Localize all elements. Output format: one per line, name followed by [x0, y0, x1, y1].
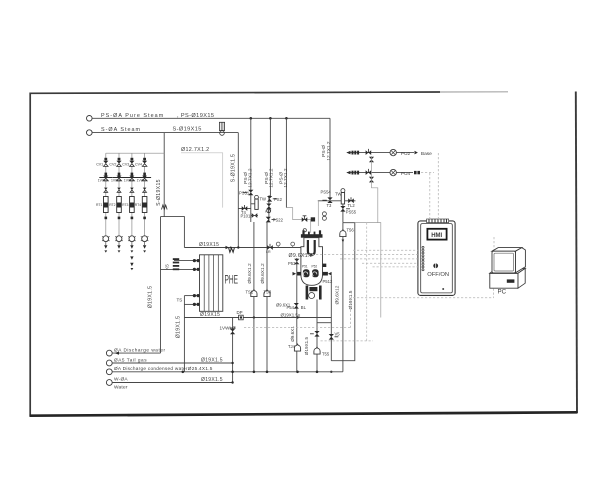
svg-text:S-Ø19X15: S-Ø19X15	[156, 179, 162, 206]
svg-text:TS: TS	[177, 298, 183, 303]
svg-text:LR: LR	[266, 250, 271, 254]
svg-text:P51: P51	[302, 265, 308, 269]
svg-text:S-Ø19X1.5: S-Ø19X1.5	[231, 154, 237, 182]
svg-text:Ø9.6X1: Ø9.6X1	[290, 326, 295, 342]
svg-text:RT2: RT2	[109, 203, 115, 207]
svg-text:Ø19X1.5: Ø19X1.5	[304, 336, 309, 355]
svg-text:T3: T3	[327, 203, 333, 208]
svg-text:Ø9.6X12: Ø9.6X12	[335, 285, 341, 304]
svg-text:PS-ØA Pure Steam: PS-ØA Pure Steam	[101, 113, 164, 119]
svg-text:PS22: PS22	[273, 218, 284, 223]
svg-text:Ø19X1.5: Ø19X1.5	[348, 290, 354, 309]
svg-text:TW: TW	[260, 197, 267, 202]
svg-text:BL: BL	[301, 305, 307, 310]
svg-text:P52: P52	[312, 265, 318, 269]
svg-text:PS51: PS51	[239, 190, 250, 195]
svg-text:1VW1: 1VW1	[98, 178, 107, 182]
svg-text:Ø19X1.5: Ø19X1.5	[148, 286, 154, 309]
svg-text:PC: PC	[498, 289, 507, 296]
svg-text:RT1: RT1	[96, 203, 102, 207]
svg-text:PU2: PU2	[401, 151, 411, 157]
svg-text:1VWLØ: 1VWLØ	[220, 326, 237, 331]
svg-text:V5: V5	[335, 332, 341, 337]
svg-text:CV4: CV4	[135, 163, 142, 167]
svg-text:PS2: PS2	[274, 197, 283, 202]
svg-text:PU4: PU4	[401, 171, 411, 177]
svg-text:Ø19X1.5: Ø19X1.5	[176, 316, 182, 339]
svg-text:S-Ø19X15: S-Ø19X15	[173, 127, 202, 133]
svg-text:TL2: TL2	[348, 203, 356, 208]
svg-text:TJ4: TJ4	[288, 344, 296, 349]
svg-text:Ø19X15: Ø19X15	[199, 242, 219, 248]
svg-text:ØA Discharge water: ØA Discharge water	[114, 347, 166, 352]
svg-text:RT4: RT4	[135, 203, 141, 207]
svg-text:CV3: CV3	[122, 163, 129, 167]
svg-text:P101: P101	[241, 214, 251, 219]
svg-text:Ø19X1.5: Ø19X1.5	[201, 357, 223, 363]
svg-text:K5: K5	[165, 264, 170, 270]
svg-text:12.7X1.2: 12.7X1.2	[283, 168, 289, 188]
svg-text:Ø9.6X1.2: Ø9.6X1.2	[247, 263, 253, 284]
svg-text:PHE: PHE	[225, 274, 239, 286]
svg-text:TS2: TS2	[246, 290, 254, 295]
svg-text:HMI: HMI	[431, 233, 442, 239]
svg-text:CV2: CV2	[109, 163, 116, 167]
svg-text:12.7X1.2: 12.7X1.2	[248, 168, 254, 188]
svg-text:AD: AD	[265, 209, 271, 214]
svg-text:1VW4: 1VW4	[137, 178, 146, 182]
svg-text:, PS-Ø19X15: , PS-Ø19X15	[177, 113, 214, 119]
svg-text:CV1: CV1	[96, 163, 103, 167]
svg-text:Ø9.6X1.2: Ø9.6X1.2	[289, 253, 313, 259]
svg-text:T55: T55	[322, 352, 330, 357]
svg-text:W-ØA: W-ØA	[114, 377, 128, 383]
svg-text:P53: P53	[288, 261, 296, 266]
svg-text:Ø9.6X1.2: Ø9.6X1.2	[260, 263, 266, 284]
svg-text:Ø9.6X1: Ø9.6X1	[276, 302, 291, 307]
svg-text:TS3: TS3	[264, 290, 272, 295]
svg-text:PS55: PS55	[346, 210, 357, 215]
svg-text:S-ØA Steam: S-ØA Steam	[101, 127, 141, 133]
svg-text:Ø19X1.5u: Ø19X1.5u	[281, 313, 301, 318]
svg-text:1VW3: 1VW3	[124, 178, 133, 182]
svg-text:ØA5 Tail gas: ØA5 Tail gas	[114, 357, 147, 362]
svg-text:PS54: PS54	[321, 190, 332, 195]
svg-text:TW: TW	[335, 192, 342, 197]
svg-text:OFF/ON: OFF/ON	[427, 272, 449, 278]
svg-text:DP: DP	[237, 310, 243, 315]
svg-text:Base: Base	[421, 151, 432, 157]
svg-text:12.7X1.2: 12.7X1.2	[326, 141, 332, 161]
svg-text:ØA Discharge condensed waterØ2: ØA Discharge condensed waterØ25.4X1.5	[114, 366, 213, 371]
svg-text:RT3: RT3	[122, 203, 128, 207]
svg-text:Ø19X1.5: Ø19X1.5	[201, 377, 223, 383]
svg-text:12.7X1.2: 12.7X1.2	[269, 168, 275, 188]
svg-text:Ø12.7X1.2: Ø12.7X1.2	[181, 147, 209, 153]
svg-text:T56: T56	[347, 228, 355, 233]
svg-text:Water: Water	[114, 385, 128, 391]
svg-text:1VW2: 1VW2	[111, 178, 120, 182]
